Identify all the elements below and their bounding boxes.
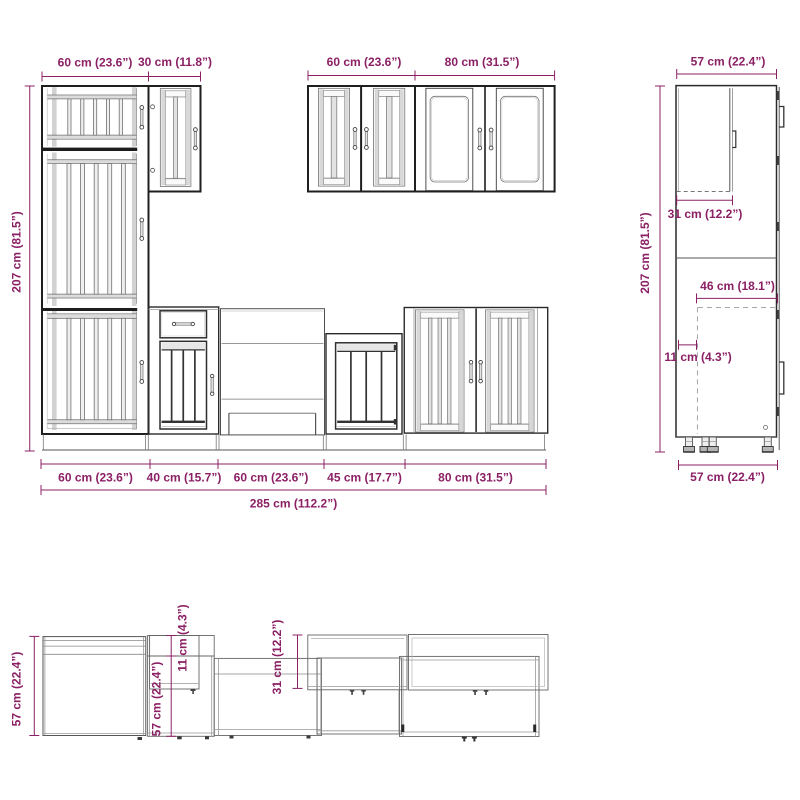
svg-text:60 cm (23.6”): 60 cm (23.6”) <box>58 56 133 70</box>
svg-text:285 cm (112.2”): 285 cm (112.2”) <box>250 497 337 511</box>
svg-text:60 cm (23.6”): 60 cm (23.6”) <box>327 55 402 69</box>
svg-text:57 cm (22.4”): 57 cm (22.4”) <box>10 652 24 727</box>
svg-text:11 cm (4.3”): 11 cm (4.3”) <box>664 350 731 364</box>
svg-text:207 cm (81.5”): 207 cm (81.5”) <box>638 212 652 293</box>
svg-text:57 cm (22.4”): 57 cm (22.4”) <box>691 55 766 69</box>
svg-text:31 cm (12.2”): 31 cm (12.2”) <box>668 207 743 221</box>
svg-text:80 cm (31.5”): 80 cm (31.5”) <box>438 471 513 485</box>
svg-text:11 cm (4.3”): 11 cm (4.3”) <box>176 604 190 671</box>
svg-text:46 cm (18.1”): 46 cm (18.1”) <box>700 279 775 293</box>
svg-text:40 cm (15.7”): 40 cm (15.7”) <box>147 471 222 485</box>
svg-text:57 cm (22.4”): 57 cm (22.4”) <box>150 662 164 737</box>
svg-text:60 cm (23.6”): 60 cm (23.6”) <box>58 471 133 485</box>
svg-text:57 cm (22.4”): 57 cm (22.4”) <box>690 470 765 484</box>
svg-text:31 cm (12.2”): 31 cm (12.2”) <box>270 620 284 695</box>
svg-text:207 cm (81.5”): 207 cm (81.5”) <box>10 211 24 292</box>
svg-text:60 cm (23.6”): 60 cm (23.6”) <box>234 471 309 485</box>
svg-text:45 cm (17.7”): 45 cm (17.7”) <box>327 471 402 485</box>
svg-text:30 cm (11.8”): 30 cm (11.8”) <box>138 55 212 69</box>
svg-text:80 cm (31.5”): 80 cm (31.5”) <box>445 55 520 69</box>
